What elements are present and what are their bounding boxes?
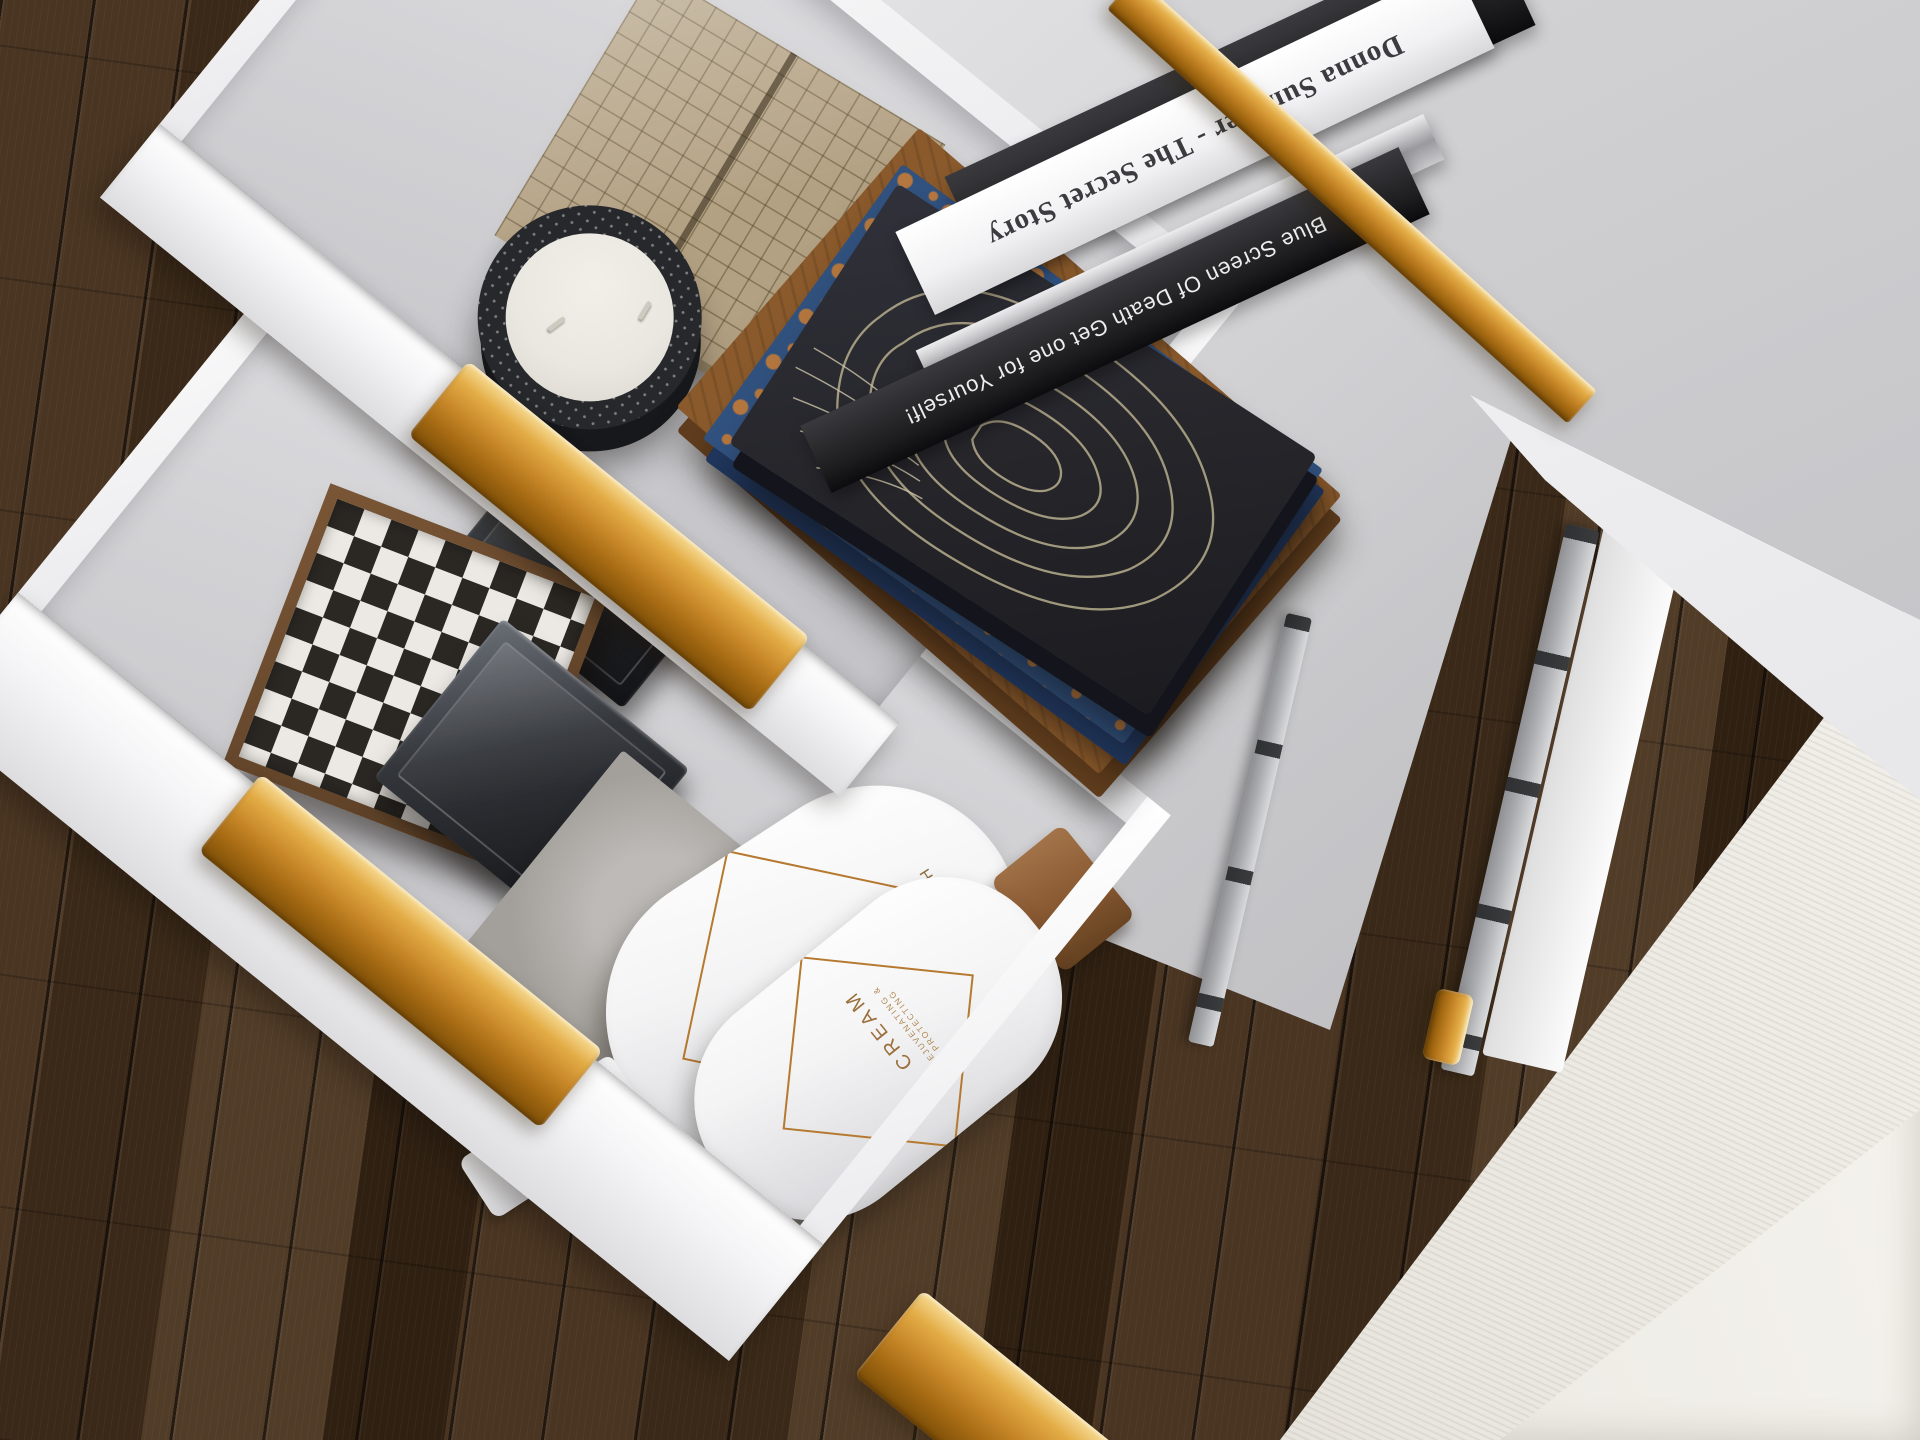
scene: WASH D CREAM REJUVENATING & PROTECTING xyxy=(0,0,1920,1440)
